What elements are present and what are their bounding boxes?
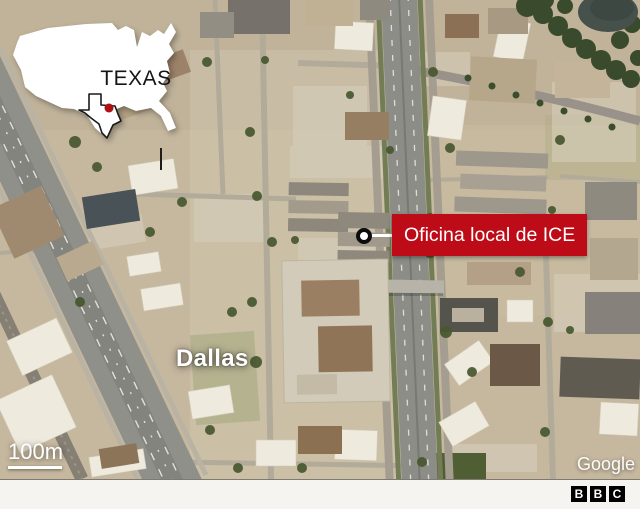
bbc-logo-block: C	[609, 486, 625, 502]
texas-label: TEXAS	[100, 67, 171, 90]
city-label: Dallas	[176, 345, 249, 373]
location-marker	[356, 228, 372, 244]
callout-connector-line	[371, 234, 392, 237]
usa-inset-map: TEXAS	[8, 6, 204, 146]
bbc-logo-letter: B	[575, 487, 584, 501]
bbc-logo: B B C	[571, 486, 625, 502]
bbc-logo-block: B	[571, 486, 587, 502]
google-attribution: Google	[577, 454, 635, 475]
scale-bar: 100m	[8, 440, 63, 469]
ice-office-callout: Oficina local de ICE	[392, 214, 587, 256]
news-map-graphic: TEXAS Oficina local de ICE Dallas 100m G…	[0, 0, 640, 509]
bbc-logo-letter: C	[613, 487, 622, 501]
footer-bar: B B C	[0, 479, 640, 509]
ice-office-callout-label: Oficina local de ICE	[404, 224, 575, 247]
bbc-logo-letter: B	[594, 487, 603, 501]
scale-bar-label: 100m	[8, 440, 63, 464]
bbc-logo-block: B	[590, 486, 606, 502]
dallas-marker-dot	[105, 104, 114, 113]
satellite-map: TEXAS Oficina local de ICE Dallas 100m G…	[0, 0, 640, 479]
scale-bar-line	[8, 466, 62, 469]
